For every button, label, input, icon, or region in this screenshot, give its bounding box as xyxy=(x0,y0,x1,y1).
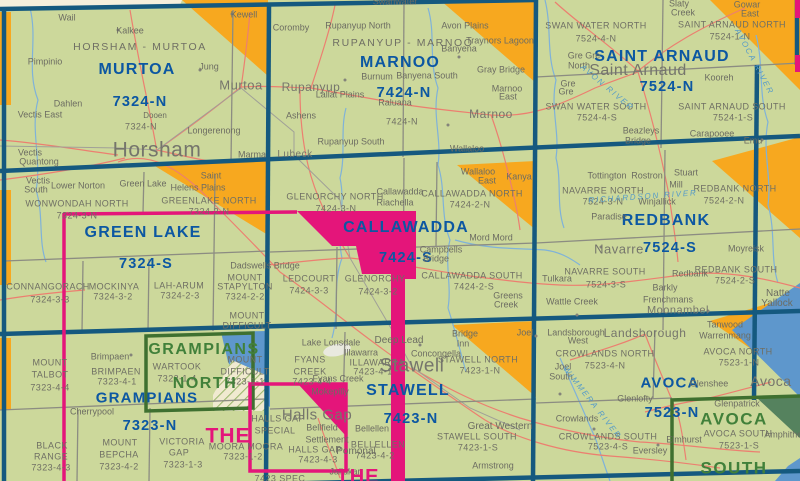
map-cell-label: 7323-1-3 xyxy=(163,461,202,470)
map-cell-label: 7423-1-N xyxy=(460,367,501,376)
town-label: Longerenong xyxy=(187,127,240,136)
map-cell-label: LAH-ARUM xyxy=(154,282,204,291)
town-label: Gre Gre xyxy=(568,52,601,61)
map-cell-label: MOUNT xyxy=(230,312,265,321)
town-label: Riachella xyxy=(376,199,413,208)
town-label: Deep Lead xyxy=(375,336,424,346)
town-label: Helens Plains xyxy=(170,184,225,193)
town-label: Illawarra xyxy=(344,349,378,358)
map-cell-label: AVOCA NORTH xyxy=(703,348,772,357)
sheet-title-label: 7524-N xyxy=(640,80,695,95)
map-cell-label: 7523-1-S xyxy=(719,442,759,451)
town-label: Kanya xyxy=(506,173,532,182)
town-label: Great Western xyxy=(468,422,533,432)
town-label: East xyxy=(741,10,759,19)
town-label: Glenlofty xyxy=(617,395,653,404)
map-cell-label: MOUNT xyxy=(103,439,138,448)
map-cell-label: WARTOOK xyxy=(153,363,202,372)
map-cell-label: GREENLAKE NORTH xyxy=(161,197,256,206)
big-town-label: Stawell xyxy=(380,357,445,376)
big-town-label: Landsborough xyxy=(604,327,687,339)
sheet-title-label: 7524-S xyxy=(643,241,697,256)
town-label: Avon Plains xyxy=(441,22,488,31)
town-label: Lake Lonsdale xyxy=(302,339,361,348)
map-cell-label: BEPCHA xyxy=(99,451,138,460)
big-town-label: Murtoa xyxy=(219,79,262,92)
map-cell-label: 7424-2-N xyxy=(450,201,491,210)
special-map-title: THE xyxy=(337,467,380,481)
town-label: Stuart xyxy=(674,169,698,178)
map-cell-label: 7524-3-S xyxy=(586,281,626,290)
sheet-title-label: 7323-N xyxy=(123,419,178,434)
map-cell-label: CALLAWADDA SOUTH xyxy=(421,272,522,281)
map-cell-label: CROWLANDS SOUTH xyxy=(559,433,658,442)
town-label: Dooen xyxy=(143,112,167,120)
map-cell-label: GLENORCHY xyxy=(345,275,406,284)
map-cell-label: 7424-N xyxy=(386,118,418,127)
map-cell-label: GLENORCHY NORTH xyxy=(286,193,383,202)
map-cell-label: 7324-3-2 xyxy=(93,293,132,302)
town-label: Kalkee xyxy=(116,27,144,36)
town-label: Joel xyxy=(517,329,534,338)
map-cell-label: DIFFICULT xyxy=(223,322,272,331)
town-label: Frenchmans xyxy=(643,296,693,305)
town-label: Dadswells Bridge xyxy=(230,262,300,271)
town-label: Warrenmang xyxy=(699,332,751,341)
town-label: Inn xyxy=(457,340,470,349)
big-town-label: Moonambel xyxy=(647,306,709,317)
map-cell-label: 7323-4-4 xyxy=(30,384,69,393)
town-label: Banyena South xyxy=(396,72,458,81)
town-label: Tottington xyxy=(587,172,626,181)
map-cell-label: SWAN WATER NORTH xyxy=(545,22,646,31)
town-label: Armstrong xyxy=(472,462,514,471)
big-town-label: Halls Gap xyxy=(282,408,352,423)
map-cell-label: 7424-2-S xyxy=(454,283,494,292)
town-label: Bridge xyxy=(625,137,651,146)
town-label: Barkly xyxy=(652,284,677,293)
town-label: Quantong xyxy=(19,158,59,167)
town-label: Saint xyxy=(201,172,222,181)
town-label: Elmhurst xyxy=(666,436,702,445)
town-label: Settlement xyxy=(305,436,348,445)
sheet-title-label: GRAMPIANS xyxy=(96,391,198,406)
map-cell-label: 7424-3-2 xyxy=(358,288,397,297)
map-cell-label: HORSHAM - MURTOA xyxy=(73,42,207,53)
town-label: Burnum xyxy=(361,73,393,82)
map-cell-label: SAINT ARNAUD NORTH xyxy=(678,21,786,30)
town-label: Fyans Creek xyxy=(312,375,363,384)
big-town-label: Navarre xyxy=(594,243,644,256)
map-cell-label: 7524-4-N xyxy=(576,35,617,44)
map-cell-label: 7524-1-S xyxy=(713,114,753,123)
map-cell-label: MOCKINYA xyxy=(89,283,140,292)
town-label: Kewell xyxy=(231,11,258,20)
map-cell-label: 7324-N xyxy=(125,123,157,132)
map-cell-label: 7424-3-3 xyxy=(289,287,328,296)
map-cell-label: HALLS GAP xyxy=(288,446,342,455)
sheet-title-label: GREEN LAKE xyxy=(85,225,202,241)
town-label: Swanwater xyxy=(373,0,418,7)
map-cell-label: 7423-1-S xyxy=(458,444,498,453)
map-cell-label: AVOCA SOUTH xyxy=(704,430,773,439)
town-label: Mokepilly xyxy=(311,388,349,397)
map-cell-label: 7423 SPEC xyxy=(255,475,306,481)
map-cell-label: WONWONDAH NORTH xyxy=(25,200,128,209)
town-label: Glenpatrick xyxy=(714,400,760,409)
town-label: Redbank xyxy=(672,270,708,279)
town-label: Beazleys xyxy=(623,127,660,136)
river-label: AVOCA RIVER xyxy=(733,28,775,97)
town-label: Paradise xyxy=(591,213,627,222)
town-label: Tulkara xyxy=(542,275,572,284)
town-label: Dahlen xyxy=(54,100,83,109)
town-label: Lower Norton xyxy=(51,182,105,191)
sheet-title-label: STAWELL xyxy=(366,383,450,399)
map-labels-layer: MURTOA7324-NMARNOO7424-NSAINT ARNAUD7524… xyxy=(0,0,800,481)
sheet-title-label: MURTOA xyxy=(98,62,175,78)
map-cell-label: 7323-4-1 xyxy=(97,378,136,387)
map-cell-label: REDBANK NORTH xyxy=(693,185,776,194)
map-cell-label: 7523-1-N xyxy=(719,359,760,368)
town-label: Wallaloo xyxy=(450,145,484,154)
map-cell-label: 7324-3-N xyxy=(57,212,98,221)
town-label: Yallock xyxy=(761,299,793,309)
town-label: Bellfield xyxy=(306,424,338,433)
map-canvas: MURTOA7324-NMARNOO7424-NSAINT ARNAUD7524… xyxy=(0,0,800,481)
map-cell-label: 7424-3-N xyxy=(316,205,357,214)
river-label: WIMMERA RIVER xyxy=(561,365,622,440)
special-map-title: THE xyxy=(206,426,251,447)
town-label: Callawadda xyxy=(376,188,423,197)
map-cell-label: STAWELL SOUTH xyxy=(437,433,517,442)
town-label: Rupanyup South xyxy=(317,138,384,147)
town-label: Emu xyxy=(744,137,763,146)
sheet-title-label: 7324-S xyxy=(119,257,173,272)
map-cell-label: STAPYLTON xyxy=(217,283,273,292)
town-label: Cherrypool xyxy=(70,408,114,417)
sheet-title-label: MARNOO xyxy=(360,55,440,71)
map-cell-label: FYANS xyxy=(294,356,325,365)
map-cell-label: BRIMPAEN xyxy=(91,368,141,377)
town-label: Tanwood xyxy=(707,321,743,330)
town-label: Ashens xyxy=(286,112,316,121)
town-label: Kooreh xyxy=(704,74,733,83)
map-cell-label: 7524-2-N xyxy=(704,197,745,206)
map-cell-label: SAINT ARNAUD SOUTH xyxy=(678,103,786,112)
town-label: Gray Bridge xyxy=(477,66,525,75)
big-town-label: Saint Arnaud xyxy=(589,63,687,79)
map-cell-label: 7324-2-N xyxy=(189,208,230,217)
town-label: East xyxy=(478,177,496,186)
town-label: Crowlands xyxy=(556,415,599,424)
map-cell-label: CALLAWADDA NORTH xyxy=(421,190,523,199)
town-label: Gre xyxy=(558,88,573,97)
town-label: Jung xyxy=(199,63,219,72)
map-cell-label: 7524-2-S xyxy=(715,277,755,286)
town-label: Amphitheatre xyxy=(764,431,800,440)
park-title-label: SOUTH xyxy=(701,460,768,477)
map-cell-label: 7523-4-N xyxy=(585,362,626,371)
town-label: Brimpaen xyxy=(91,353,130,362)
big-town-label: Avoca xyxy=(750,374,791,388)
map-cell-label: NAVARRE SOUTH xyxy=(564,268,645,277)
map-cell-label: 7323-4-2 xyxy=(99,463,138,472)
map-cell-label: CONNANGORACH xyxy=(6,283,89,292)
town-label: Mill xyxy=(669,181,683,190)
sheet-title-label: CALLAWADDA xyxy=(343,220,469,236)
town-label: Eversley xyxy=(633,447,668,456)
town-label: East xyxy=(499,93,517,102)
map-cell-label: BLACK xyxy=(36,442,68,451)
big-town-label: Marnoo xyxy=(469,108,513,120)
town-label: Raluana xyxy=(378,99,412,108)
big-town-label: Lubeck xyxy=(277,150,312,160)
map-cell-label: TALBOT xyxy=(32,371,69,380)
map-cell-label: 7323-4-3 xyxy=(31,464,70,473)
map-cell-label: 7323-1-2 xyxy=(223,453,262,462)
map-cell-label: CROWLANDS NORTH xyxy=(556,350,655,359)
town-label: Green Lake xyxy=(119,180,166,189)
sheet-title-label: 7324-N xyxy=(113,95,168,110)
park-title-label: GRAMPIANS xyxy=(148,342,259,358)
park-title-label: NORTH xyxy=(173,376,237,392)
town-label: West xyxy=(568,337,588,346)
town-label: Rupanyup North xyxy=(325,22,391,31)
map-cell-label: 7324-2-3 xyxy=(160,292,199,301)
big-town-label: Rupanyup xyxy=(282,81,341,93)
town-label: Mord Mord xyxy=(469,234,513,243)
town-label: Rostron xyxy=(631,172,663,181)
map-cell-label: 7524-4-S xyxy=(577,114,617,123)
town-label: Bridge xyxy=(423,255,449,264)
town-label: Wattle Creek xyxy=(546,298,598,307)
town-label: Carapooee xyxy=(690,130,735,139)
sheet-title-label: 7423-N xyxy=(384,412,439,427)
map-cell-label: 7523-4-S xyxy=(588,443,628,452)
sheet-title-label: REDBANK xyxy=(622,213,710,229)
town-label: Creek xyxy=(671,9,695,18)
map-cell-label: 7423-4-3 xyxy=(298,456,337,465)
town-label: South xyxy=(24,186,48,195)
sheet-title-label: 7523-N xyxy=(645,406,700,421)
town-label: Vectis East xyxy=(18,111,63,120)
town-label: Creek xyxy=(494,301,518,310)
town-label: Moyreisk xyxy=(728,245,764,254)
town-label: Bellellen xyxy=(355,425,389,434)
map-cell-label: MOUNT xyxy=(33,359,68,368)
town-label: Pomonal xyxy=(336,447,375,457)
town-label: Bridge xyxy=(452,330,478,339)
map-cell-label: GAP xyxy=(169,449,189,458)
big-town-label: Horsham xyxy=(113,140,202,161)
map-cell-label: VICTORIA xyxy=(159,438,205,447)
map-cell-label: LEDCOURT xyxy=(283,275,336,284)
map-cell-label: RANGE xyxy=(34,453,68,462)
map-cell-label: 7324-3-3 xyxy=(30,296,69,305)
town-label: Marma xyxy=(238,151,266,160)
park-title-label: AVOCA xyxy=(700,411,768,428)
map-cell-label: 7324-2-2 xyxy=(225,293,264,302)
town-label: Glenshee xyxy=(690,380,729,389)
town-label: Wail xyxy=(58,14,75,23)
map-cell-label: SPECIAL xyxy=(255,427,296,436)
town-label: Coromby xyxy=(273,24,310,33)
town-label: Banyena xyxy=(441,45,477,54)
town-label: Pimpinio xyxy=(28,58,63,67)
